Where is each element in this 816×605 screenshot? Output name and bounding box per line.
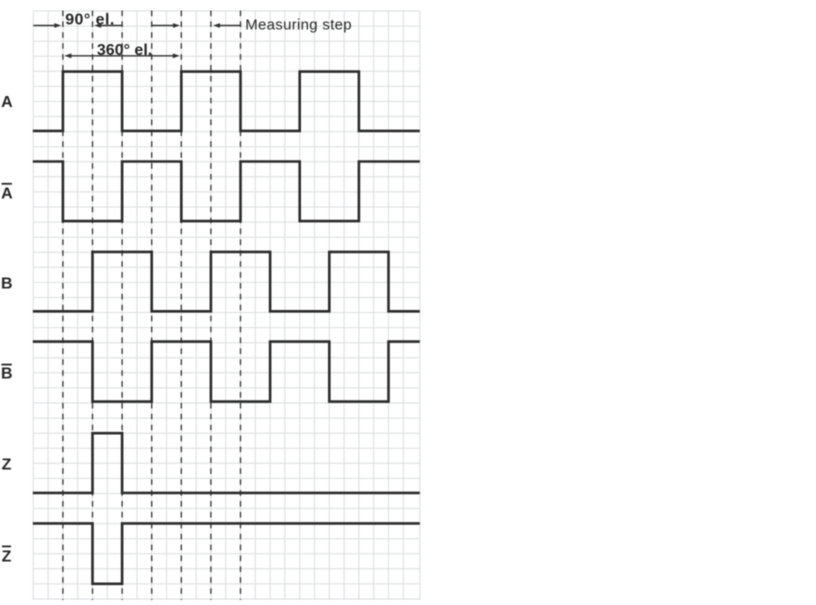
svg-text:360° el.: 360° el. — [97, 42, 152, 59]
svg-text:90° el.: 90° el. — [65, 11, 115, 28]
svg-text:Z: Z — [2, 548, 12, 565]
svg-text:A: A — [1, 94, 13, 111]
svg-text:Z: Z — [2, 456, 12, 473]
svg-text:B: B — [1, 365, 13, 382]
svg-text:B: B — [1, 276, 13, 293]
svg-text:Measuring step: Measuring step — [245, 17, 352, 34]
svg-text:A: A — [1, 185, 13, 202]
